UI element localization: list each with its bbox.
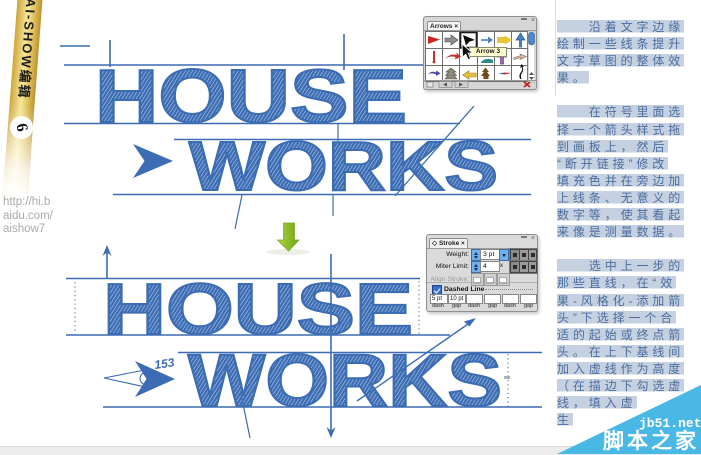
svg-text:脚本之家: 脚本之家 [603, 429, 699, 453]
svg-text:jb51.net: jb51.net [639, 416, 701, 431]
